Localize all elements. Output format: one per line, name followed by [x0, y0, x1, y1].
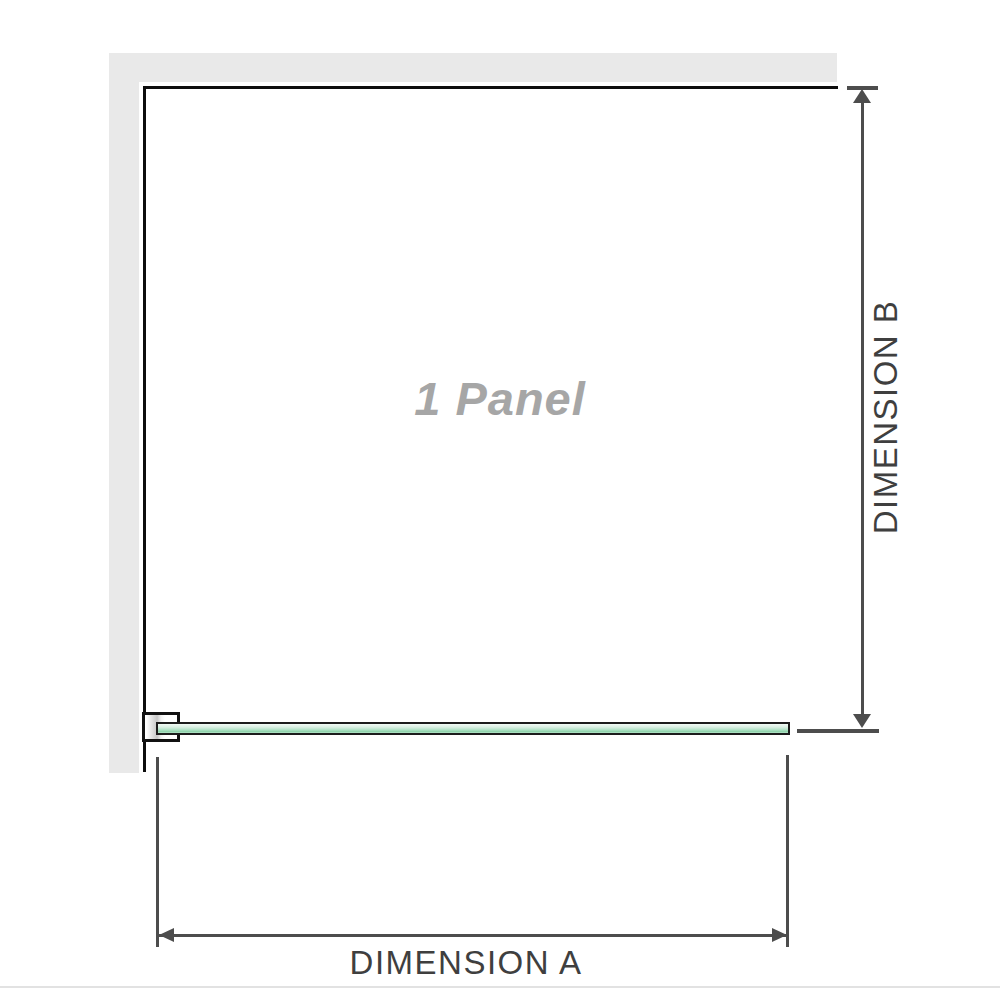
dimension-a-extension-left — [156, 757, 159, 947]
glass-panel — [156, 722, 790, 735]
dimension-a-line — [159, 934, 788, 937]
panel-title: 1 Panel — [330, 371, 670, 426]
page-divider — [0, 986, 1000, 988]
dimension-b-label: DIMENSION B — [866, 267, 906, 567]
arrow-left-icon — [159, 928, 174, 942]
wall-band-left — [109, 53, 139, 773]
dimension-a-extension-right — [786, 755, 789, 947]
arrow-down-icon — [853, 714, 871, 728]
arrow-up-icon — [853, 89, 871, 103]
wall-band-top — [109, 53, 837, 82]
dimension-b-line — [861, 92, 864, 720]
dimension-b-tick-bottom — [797, 729, 879, 733]
wall-inner-edge-top — [143, 86, 838, 89]
panel-dimension-diagram: 1 Panel DIMENSION B DIMENSION A — [0, 0, 1000, 1000]
wall-inner-edge-left — [143, 86, 146, 772]
arrow-right-icon — [772, 928, 787, 942]
dimension-a-label: DIMENSION A — [266, 944, 666, 982]
